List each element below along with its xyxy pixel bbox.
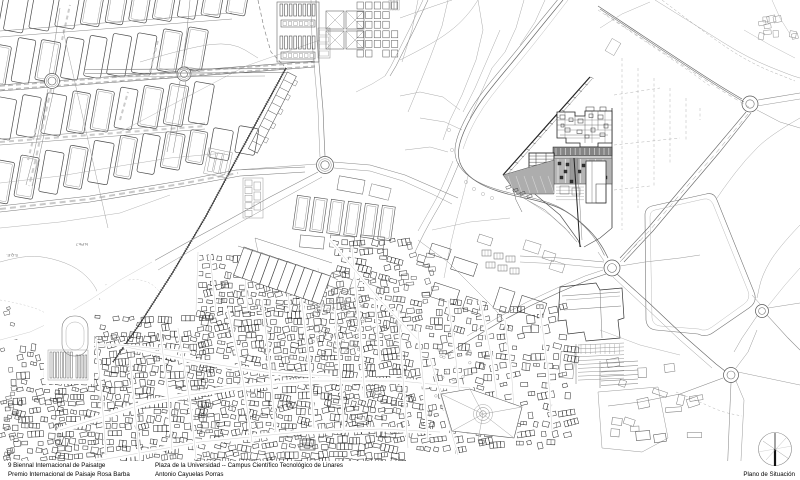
svg-text:Antonio Cayuelas Porras: Antonio Cayuelas Porras [155,471,223,478]
svg-text:Plano de Situación: Plano de Situación [743,471,795,478]
svg-text:9 Biennal Internacional de Pai: 9 Biennal Internacional de Paisatge [8,462,106,469]
svg-text:Premio Internacional de Paisaj: Premio Internacional de Paisaje Rosa Bar… [8,471,130,478]
svg-text:S.Q.E.: S.Q.E. [6,253,18,258]
svg-text:N.Pb.7: N.Pb.7 [75,242,88,247]
svg-text:Plaza de la Universidad -- Cam: Plaza de la Universidad -- Campus Cientí… [155,462,343,469]
